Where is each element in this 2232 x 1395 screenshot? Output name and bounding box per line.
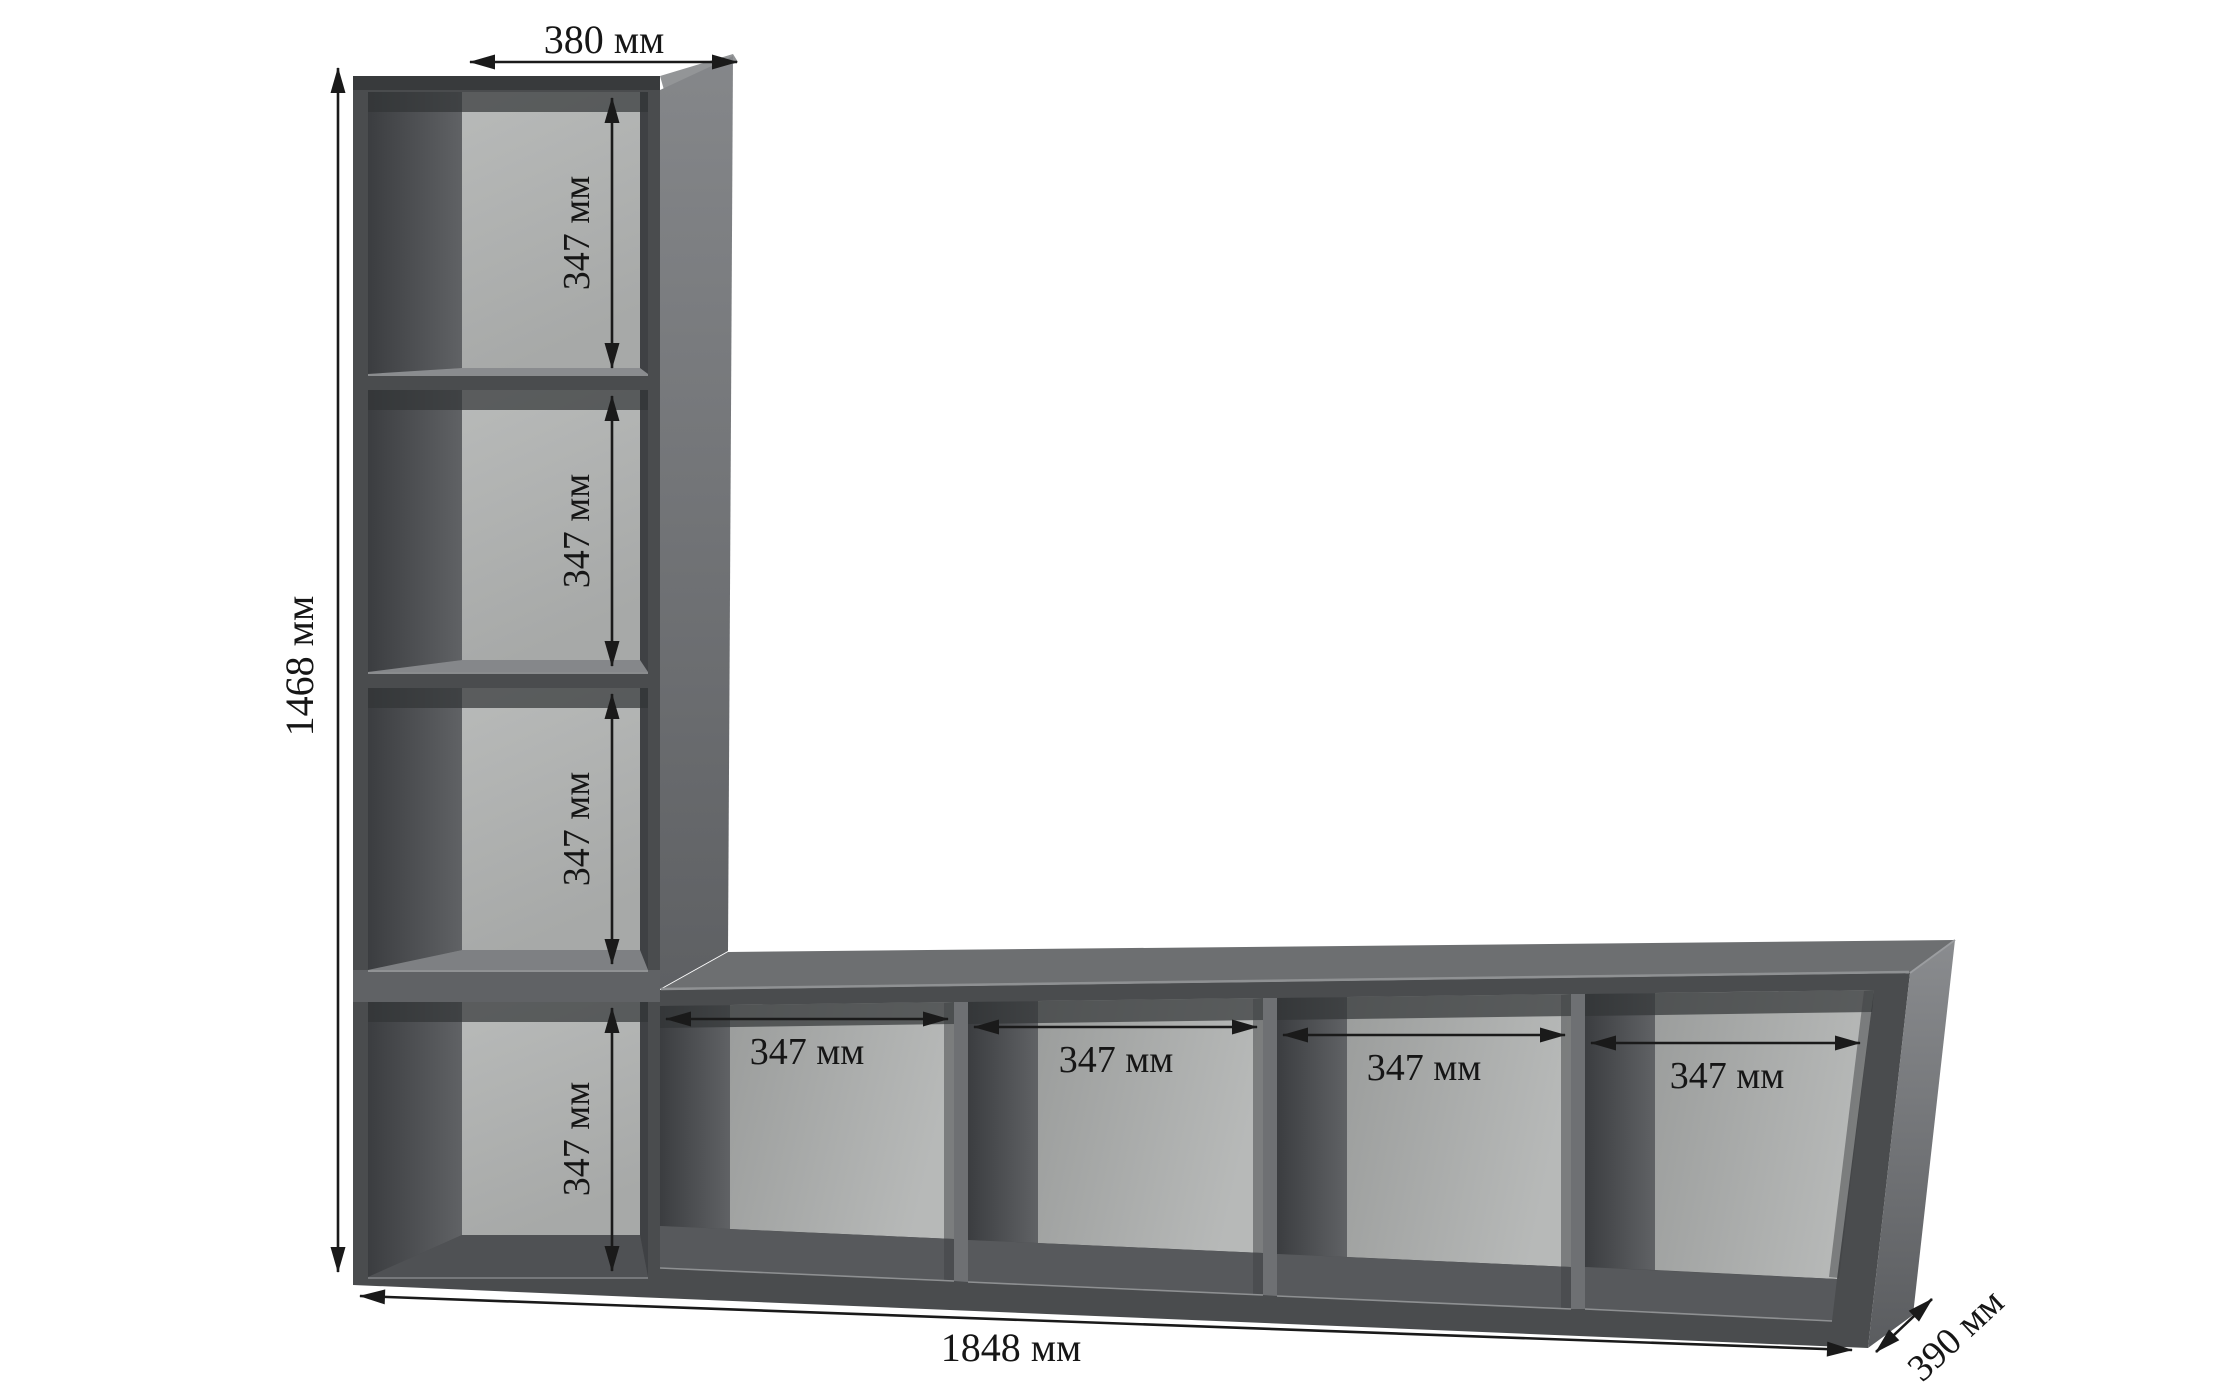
- column-cell-1: [368, 92, 648, 375]
- cell-right-shadow: [640, 688, 648, 970]
- dim-label-column-cell-3: 347 мм: [556, 772, 598, 887]
- column-cell-3: [368, 688, 648, 971]
- dim-label-top-width: 380 мм: [544, 17, 665, 62]
- cell-left-wall: [660, 1005, 730, 1229]
- cell-left-wall: [368, 688, 462, 970]
- diagram-stage: 380 мм 1468 мм 347 мм 347 мм 347 мм 347 …: [0, 0, 2232, 1395]
- dim-label-row-cell-4: 347 мм: [1670, 1055, 1785, 1097]
- row-divider-2: [1263, 998, 1277, 1296]
- cell-right-shadow: [640, 92, 648, 374]
- cell-right-shadow: [1561, 994, 1571, 1309]
- cell-left-wall: [368, 390, 462, 672]
- row-divider-1: [954, 1002, 968, 1282]
- column-right-side-panel: [660, 56, 733, 989]
- dim-label-row-cell-1: 347 мм: [750, 1031, 865, 1073]
- column-top-edge: [353, 76, 660, 90]
- dim-label-total-height: 1468 мм: [277, 596, 322, 737]
- dim-label-column-cell-4: 347 мм: [556, 1082, 598, 1197]
- dim-label-column-cell-1: 347 мм: [556, 176, 598, 291]
- dim-label-total-width: 1848 мм: [941, 1325, 1082, 1370]
- dim-label-row-cell-2: 347 мм: [1059, 1039, 1174, 1081]
- cell-right-shadow: [944, 1002, 954, 1281]
- cell-left-wall: [368, 92, 462, 374]
- cell-right-shadow: [1253, 998, 1263, 1295]
- row-unit: [660, 940, 1955, 1348]
- column-cell-4: [368, 1002, 648, 1278]
- row-cell-3: [1277, 994, 1571, 1309]
- cell-right-shadow: [640, 1002, 648, 1277]
- row-divider-3: [1571, 994, 1585, 1309]
- column-shelf-junction: [353, 970, 660, 1002]
- cell-left-wall: [968, 1001, 1038, 1243]
- cell-top-shadow: [368, 688, 648, 708]
- column-cell-2: [368, 390, 648, 673]
- shelving-dimension-diagram: 380 мм 1468 мм 347 мм 347 мм 347 мм 347 …: [0, 0, 2232, 1395]
- dim-label-row-cell-3: 347 мм: [1367, 1047, 1482, 1089]
- row-cell-4: [1585, 990, 1874, 1321]
- cell-left-wall: [368, 1002, 462, 1277]
- cell-back-panel: [1038, 998, 1263, 1253]
- dim-label-depth: 390 мм: [1900, 1281, 2012, 1390]
- cell-top-shadow: [368, 92, 648, 112]
- cell-top-shadow: [368, 390, 648, 410]
- cell-right-shadow: [640, 390, 648, 672]
- cell-top-shadow: [368, 1002, 648, 1022]
- cell-top-shadow: [1277, 994, 1571, 1020]
- cell-top-shadow: [1585, 990, 1874, 1016]
- dim-label-column-cell-2: 347 мм: [556, 474, 598, 589]
- cell-top-shadow: [660, 1002, 954, 1028]
- cell-left-wall: [1585, 993, 1655, 1270]
- cell-top-shadow: [968, 998, 1263, 1024]
